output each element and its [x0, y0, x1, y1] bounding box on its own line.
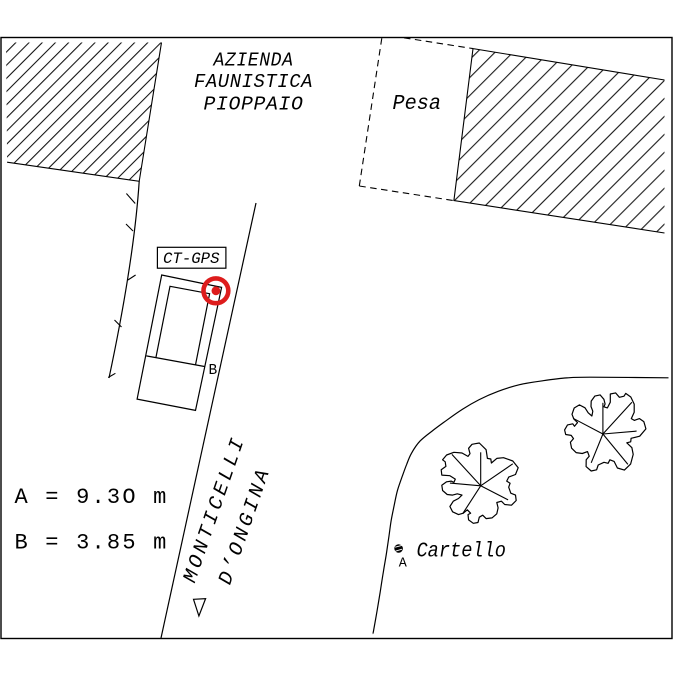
- svg-text:A = 9.3O m: A = 9.3O m: [15, 485, 169, 510]
- svg-text:Cartello: Cartello: [417, 541, 507, 564]
- svg-text:FAUNISTICA: FAUNISTICA: [194, 71, 313, 93]
- svg-text:A: A: [399, 557, 408, 572]
- svg-text:PIOPPAIO: PIOPPAIO: [204, 93, 304, 115]
- svg-text:B = 3.85 m: B = 3.85 m: [15, 531, 169, 556]
- svg-text:Pesa: Pesa: [393, 93, 442, 116]
- svg-text:AZIENDA: AZIENDA: [213, 49, 294, 71]
- svg-text:B: B: [209, 363, 218, 379]
- svg-text:CT-GPS: CT-GPS: [163, 250, 220, 268]
